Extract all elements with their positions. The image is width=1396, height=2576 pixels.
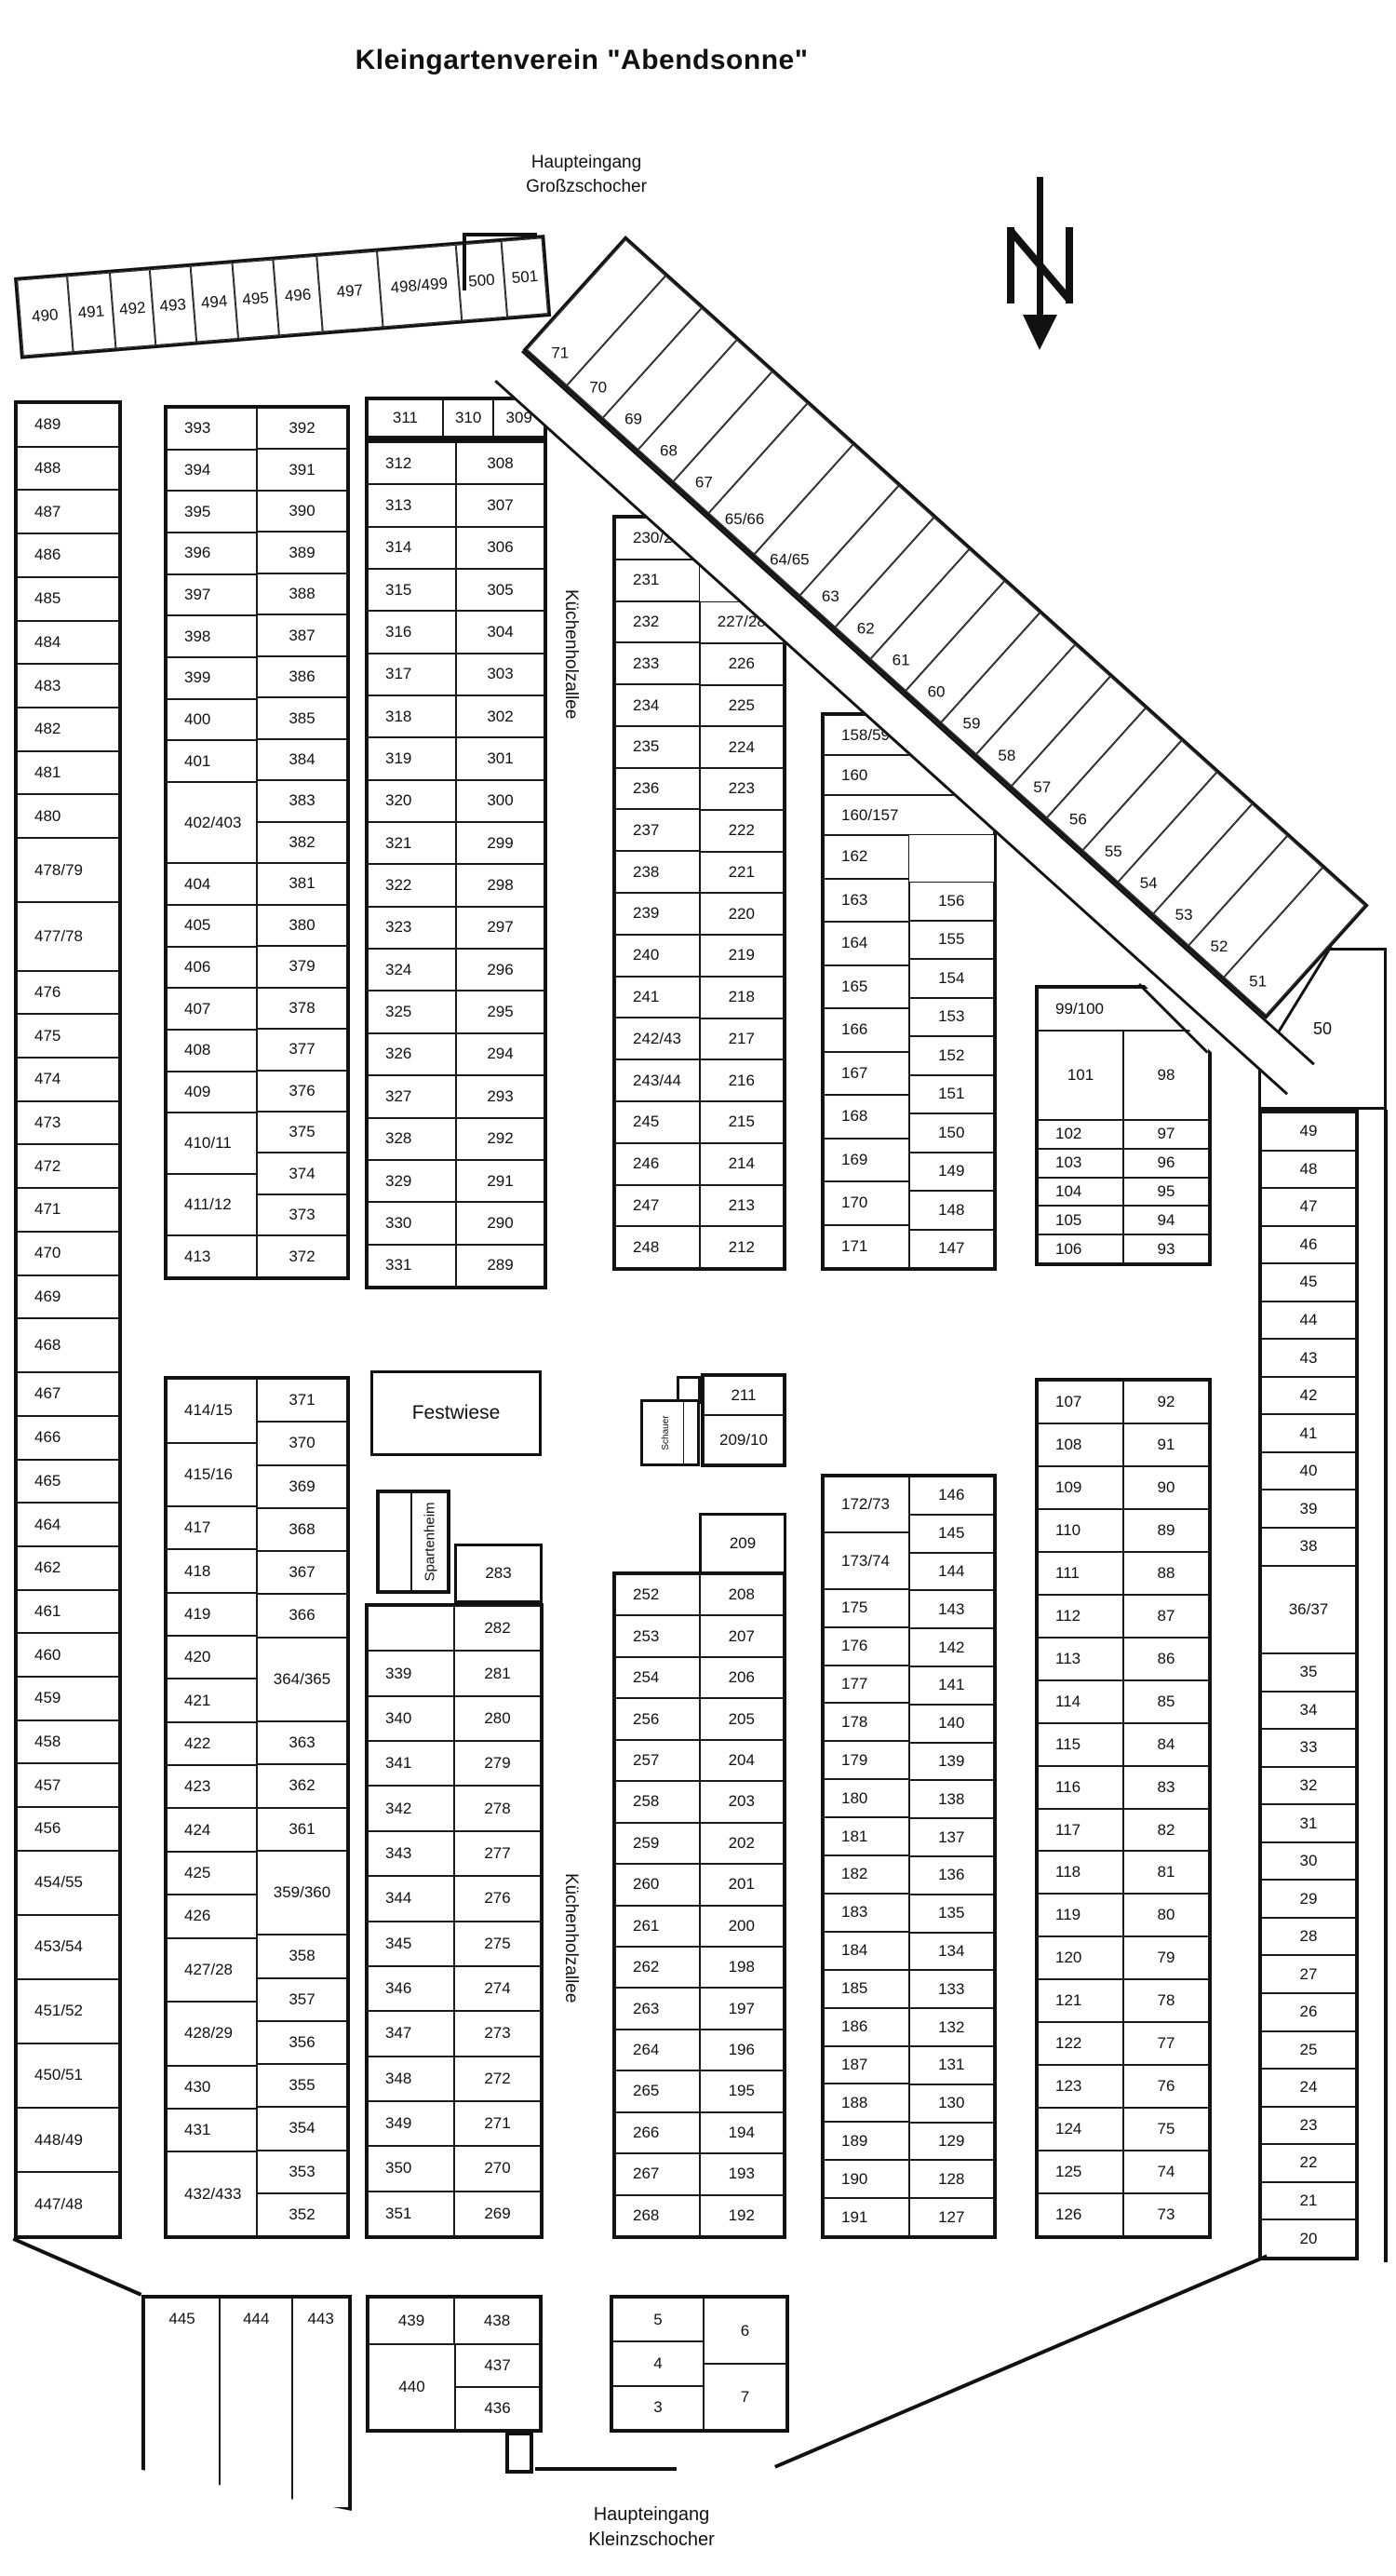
north-wall-stub-h (463, 233, 537, 236)
plot-cell: 221 (700, 852, 785, 894)
plot-cell: 190 (824, 2160, 909, 2198)
plot-cell: 488 (17, 447, 119, 491)
plot-cell: 391 (257, 449, 347, 490)
plot-block: 439438440437436 (366, 2295, 543, 2433)
plot-cell: 216 (700, 1059, 785, 1101)
plot-block: 490491492493494495496497498/499500501 (14, 235, 551, 359)
plot-cell: 497 (317, 251, 383, 332)
plot-cell: 448/49 (17, 2108, 119, 2172)
plot-cell: 340 (368, 1696, 454, 1741)
plot-cell: 173/74 (824, 1532, 909, 1588)
plot-cell: 39 (1261, 1490, 1356, 1528)
plot-cell: 273 (454, 2011, 541, 2056)
plot-cell: 169 (824, 1139, 909, 1182)
plot-cell: 279 (454, 1741, 541, 1786)
plot-cell: 141 (909, 1666, 995, 1705)
schauer-building: Schauer (640, 1399, 700, 1466)
plot-cell: 119 (1038, 1894, 1123, 1936)
plot-cell: 24 (1261, 2069, 1356, 2107)
plot-cell: 490 (17, 276, 73, 356)
plot-cell: 109 (1038, 1466, 1123, 1509)
plot-cell: 373 (257, 1194, 347, 1235)
plot-cell: 369 (257, 1465, 347, 1508)
plot-cell: 469 (17, 1275, 119, 1319)
plot-block: 172/73173/741751761771781791801811821831… (821, 1474, 997, 2239)
plot-cell: 125 (1038, 2151, 1123, 2193)
plot-cell: 351 (368, 2192, 454, 2236)
plot-cell: 498/499 (377, 245, 462, 328)
plot-cell: 298 (456, 864, 544, 906)
plot-cell: 331 (368, 1245, 456, 1287)
plot-cell: 223 (700, 768, 785, 810)
plot-cell: 3 (612, 2386, 704, 2430)
plot-cell: 378 (257, 988, 347, 1029)
plot-cell: 213 (700, 1185, 785, 1227)
plot-cell: 306 (456, 527, 544, 569)
plot-cell: 440 (369, 2344, 455, 2430)
plot-block: 489488487486485484483482481480478/79477/… (14, 400, 122, 2239)
plot-cell: 432/433 (167, 2151, 257, 2236)
plot-cell: 282 (454, 1606, 541, 1651)
plot-cell: 126 (1038, 2193, 1123, 2236)
plot-cell: 482 (17, 708, 119, 751)
plot-cell: 427/28 (167, 1938, 257, 2003)
plot-cell: 489 (17, 403, 119, 447)
spartenheim-label: Spartenheim (422, 1502, 437, 1581)
plot-cell: 292 (456, 1118, 544, 1160)
plot-cell: 495 (233, 260, 279, 339)
plot-cell: 111 (1038, 1552, 1123, 1595)
plot-cell: 377 (257, 1029, 347, 1070)
plot-cell: 94 (1123, 1206, 1209, 1234)
plot-cell: 321 (368, 822, 456, 864)
plot-cell: 96 (1123, 1149, 1209, 1178)
plot-cell: 383 (257, 780, 347, 821)
plot-cell: 80 (1123, 1894, 1209, 1936)
street-kuechenholzallee-upper: Küchenholzallee (560, 589, 581, 719)
plot-cell: 354 (257, 2107, 347, 2150)
plot-cell: 220 (700, 893, 785, 935)
southeast-wall (774, 2254, 1268, 2468)
plot-cell: 256 (615, 1698, 700, 1739)
plot-block: 49484746454443424140393836/3735343332313… (1258, 1110, 1359, 2260)
plot-cell: 445 (144, 2298, 220, 2508)
plot-cell: 428/29 (167, 2002, 257, 2066)
page-title: Kleingartenverein "Abendsonne" (349, 45, 814, 76)
plot-cell: 492 (109, 269, 155, 348)
plot-cell: 407 (167, 988, 257, 1030)
plot-cell: 198 (700, 1947, 785, 1988)
plot-cell: 183 (824, 1894, 909, 1932)
plot-cell: 475 (17, 1014, 119, 1058)
plot-cell: 419 (167, 1593, 257, 1636)
plot-cell: 319 (368, 737, 456, 779)
plot-cell: 392 (257, 408, 347, 449)
plot-cell: 38 (1261, 1528, 1356, 1566)
plot-cell: 485 (17, 577, 119, 621)
plot-cell: 83 (1123, 1766, 1209, 1809)
plot-cell: 342 (368, 1786, 454, 1830)
plot-cell: 134 (909, 1933, 995, 1971)
plot-cell: 438 (454, 2298, 540, 2344)
plot-cell: 474 (17, 1058, 119, 1101)
plot-cell: 356 (257, 2021, 347, 2064)
festwiese-area: Festwiese (370, 1370, 542, 1456)
plot-cell (368, 1606, 454, 1651)
plot-cell: 245 (615, 1101, 700, 1143)
plot-cell: 493 (150, 266, 196, 345)
plot-cell: 114 (1038, 1680, 1123, 1723)
plot-cell: 43 (1261, 1339, 1356, 1377)
plot-cell: 118 (1038, 1851, 1123, 1894)
plot-cell: 368 (257, 1508, 347, 1551)
plot-cell: 233 (615, 642, 700, 684)
plot-cell: 77 (1123, 2022, 1209, 2065)
plot-cell: 239 (615, 893, 700, 935)
plot-cell: 146 (909, 1477, 995, 1515)
plot-cell: 79 (1123, 1936, 1209, 1979)
plot-cell: 236 (615, 768, 700, 810)
plot-cell: 189 (824, 2122, 909, 2160)
plot-cell: 193 (700, 2153, 785, 2194)
plot-cell: 424 (167, 1808, 257, 1851)
plot-cell: 156 (909, 882, 995, 921)
plot-cell: 188 (824, 2084, 909, 2122)
plot-cell: 164 (824, 922, 909, 965)
plot-cell: 263 (615, 1988, 700, 2029)
plot-cell: 380 (257, 905, 347, 946)
plot-cell: 439 (369, 2298, 454, 2344)
plot-cell: 371 (257, 1379, 347, 1422)
plot-cell: 402/403 (167, 782, 257, 863)
plot-cell: 46 (1261, 1226, 1356, 1264)
plot-cell: 232 (615, 601, 700, 643)
plot-cell: 393 (167, 408, 257, 450)
plot-cell: 468 (17, 1318, 119, 1372)
plot-cell: 460 (17, 1633, 119, 1677)
plot-cell: 443 (292, 2298, 349, 2508)
plot-cell: 453/54 (17, 1915, 119, 1979)
plot-cell: 397 (167, 574, 257, 616)
plot-cell: 231 (615, 560, 700, 601)
plot-block: 414/15415/164174184194204214224234244254… (164, 1376, 350, 2239)
plot-cell: 5 (612, 2298, 704, 2341)
plot-cell: 192 (700, 2195, 785, 2236)
plot-cell: 326 (368, 1033, 456, 1075)
plot-cell: 89 (1123, 1509, 1209, 1552)
plot-cell: 339 (368, 1651, 454, 1695)
plot-cell: 150 (909, 1113, 995, 1153)
plot-cell: 272 (454, 2057, 541, 2101)
plot-cell: 409 (167, 1072, 257, 1113)
plot-cell: 457 (17, 1763, 119, 1807)
plot-cell: 138 (909, 1780, 995, 1818)
festwiese-label: Festwiese (412, 1402, 501, 1424)
plot-cell: 34 (1261, 1692, 1356, 1730)
plot-block: 3393403413423433443453463473483493503512… (365, 1603, 544, 2239)
plot-cell: 218 (700, 977, 785, 1018)
plot-cell: 481 (17, 751, 119, 795)
plot-cell: 215 (700, 1101, 785, 1143)
plot-cell: 115 (1038, 1723, 1123, 1766)
plot-cell: 207 (700, 1615, 785, 1656)
plot-cell: 135 (909, 1895, 995, 1933)
plot-cell: 225 (700, 685, 785, 727)
plot-cell: 327 (368, 1075, 456, 1117)
plot-cell: 243/44 (615, 1059, 700, 1101)
plot-cell: 222 (700, 810, 785, 852)
plot-cell: 171 (824, 1225, 909, 1269)
plot-cell: 454/55 (17, 1851, 119, 1915)
plot-cell: 374 (257, 1153, 347, 1194)
north-wall-stub-v (463, 233, 466, 290)
plot-cell: 267 (615, 2153, 700, 2194)
plot-cell: 260 (615, 1864, 700, 1905)
plot-cell: 422 (167, 1722, 257, 1765)
street-kuechenholzallee-lower: Küchenholzallee (560, 1873, 581, 2003)
plot-cell: 191 (824, 2198, 909, 2236)
plot-cell: 418 (167, 1549, 257, 1592)
plot-cell: 110 (1038, 1509, 1123, 1552)
plot-cell: 36/37 (1261, 1566, 1356, 1654)
plot-cell: 252 (615, 1574, 700, 1615)
plot-cell: 105 (1038, 1206, 1123, 1234)
plot-cell: 203 (700, 1781, 785, 1822)
plot-cell: 466 (17, 1416, 119, 1460)
plot-cell: 301 (456, 737, 544, 779)
plot-cell: 147 (909, 1230, 995, 1269)
plot-cell: 307 (456, 484, 544, 526)
plot-cell: 166 (824, 1008, 909, 1052)
plot-cell: 93 (1123, 1234, 1209, 1263)
plot-cell: 20 (1261, 2219, 1356, 2258)
plot-cell: 381 (257, 863, 347, 904)
plot-cell: 40 (1261, 1452, 1356, 1490)
plot-cell: 345 (368, 1922, 454, 1966)
plot-cell: 496 (273, 256, 323, 336)
plot-cell: 6 (704, 2298, 786, 2364)
plot-cell: 238 (615, 851, 700, 893)
plot-cell: 102 (1038, 1120, 1123, 1149)
plot-cell: 467 (17, 1372, 119, 1416)
plot-cell: 295 (456, 991, 544, 1032)
plot-cell: 172/73 (824, 1477, 909, 1532)
plot-cell: 473 (17, 1101, 119, 1145)
plot-cell: 154 (909, 959, 995, 998)
plot-cell: 132 (909, 2008, 995, 2046)
plot-cell: 200 (700, 1906, 785, 1947)
plot-cell: 494 (190, 263, 238, 342)
plot-cell: 180 (824, 1779, 909, 1817)
plot-cell: 431 (167, 2109, 257, 2151)
plot-cell: 328 (368, 1118, 456, 1160)
plot-cell: 22 (1261, 2144, 1356, 2182)
plot-cell: 106 (1038, 1234, 1123, 1263)
plot-block: 445444443 (141, 2295, 352, 2511)
plot-cell: 78 (1123, 1979, 1209, 2022)
plot-cell: 436 (455, 2387, 540, 2430)
plot-cell: 88 (1123, 1552, 1209, 1595)
plot-cell: 168 (824, 1095, 909, 1139)
plot-cell: 224 (700, 726, 785, 768)
plot-cell: 28 (1261, 1918, 1356, 1956)
plot-cell: 388 (257, 573, 347, 614)
plot-cell: 31 (1261, 1804, 1356, 1842)
plot-block: 1071081091101111121131141151161171181191… (1035, 1378, 1212, 2239)
plot-cell: 425 (167, 1852, 257, 1895)
plot-cell: 108 (1038, 1423, 1123, 1466)
plot-cell: 277 (454, 1831, 541, 1876)
plot-cell: 257 (615, 1740, 700, 1781)
plot-cell: 450/51 (17, 2043, 119, 2108)
plot-cell: 128 (909, 2160, 995, 2198)
plot-cell: 314 (368, 527, 456, 569)
plot-cell: 477/78 (17, 902, 119, 971)
plot-cell: 113 (1038, 1638, 1123, 1680)
plot-cell: 101 (1038, 1031, 1123, 1120)
plot-block: 3123133143153163173183193203213223233243… (365, 439, 547, 1289)
plot-cell: 25 (1261, 2031, 1356, 2070)
plot-cell: 182 (824, 1855, 909, 1894)
plot-cell: 302 (456, 695, 544, 737)
plot-cell: 271 (454, 2101, 541, 2146)
plot-cell: 122 (1038, 2022, 1123, 2065)
plot-cell: 359/360 (257, 1851, 347, 1935)
plot-cell: 370 (257, 1422, 347, 1464)
plot-cell: 325 (368, 991, 456, 1032)
plot-cell: 104 (1038, 1178, 1123, 1207)
plot-cell: 420 (167, 1636, 257, 1679)
plot-cell: 347 (368, 2011, 454, 2056)
plot-cell: 85 (1123, 1680, 1209, 1723)
plot-cell: 123 (1038, 2065, 1123, 2108)
plot-cell: 162 (824, 835, 909, 879)
plot-cell: 476 (17, 971, 119, 1015)
plot-cell: 137 (909, 1818, 995, 1856)
plot-cell: 379 (257, 946, 347, 987)
plot-cell: 76 (1123, 2065, 1209, 2108)
plot-cell: 241 (615, 977, 700, 1018)
plot-cell: 235 (615, 726, 700, 768)
plot-cell: 318 (368, 695, 456, 737)
plot-cell: 470 (17, 1232, 119, 1275)
plot-cell: 42 (1261, 1377, 1356, 1415)
plot-cell: 320 (368, 780, 456, 822)
plot-cell: 258 (615, 1781, 700, 1822)
plot-cell: 73 (1123, 2193, 1209, 2236)
plot-cell: 437 (455, 2344, 540, 2387)
plot-cell: 451/52 (17, 1979, 119, 2043)
plot-cell: 308 (456, 442, 544, 484)
plot-cell: 21 (1261, 2182, 1356, 2220)
plot-cell: 324 (368, 949, 456, 991)
plot-cell: 95 (1123, 1178, 1209, 1207)
plot-cell: 187 (824, 2046, 909, 2084)
plot-cell: 259 (615, 1823, 700, 1864)
plot-cell: 311 (368, 399, 443, 437)
plot-cell: 217 (700, 1018, 785, 1060)
plot-cell: 361 (257, 1808, 347, 1851)
plot-cell: 296 (456, 949, 544, 991)
plot-cell: 316 (368, 611, 456, 653)
plot-cell: 405 (167, 905, 257, 947)
plot-cell: 480 (17, 794, 119, 838)
plot-cell: 291 (456, 1160, 544, 1202)
plot-cell: 32 (1261, 1767, 1356, 1805)
plot-cell: 278 (454, 1786, 541, 1830)
plot-cell: 353 (257, 2151, 347, 2193)
plot-cell: 204 (700, 1740, 785, 1781)
plot-cell: 167 (824, 1052, 909, 1096)
plot-cell: 152 (909, 1036, 995, 1075)
plot-cell: 401 (167, 740, 257, 782)
plot-cell: 265 (615, 2070, 700, 2111)
plot-cell: 261 (615, 1906, 700, 1947)
plot-cell: 121 (1038, 1979, 1123, 2022)
plot-cell: 212 (700, 1226, 785, 1268)
plot-cell: 195 (700, 2070, 785, 2111)
plot-cell: 237 (615, 809, 700, 851)
plot-cell: 417 (167, 1506, 257, 1549)
plot-cell: 305 (456, 569, 544, 611)
plot-cell: 404 (167, 863, 257, 905)
plot-cell: 358 (257, 1935, 347, 1977)
plot-block: 211209/10 (701, 1373, 786, 1467)
main-entrance-south-label: Haupteingang Kleinzschocher (540, 2502, 763, 2553)
plot-block: 99/100101981021031041051069796959493 (1035, 985, 1212, 1266)
plot-cell: 395 (167, 491, 257, 533)
plot-cell: 382 (257, 822, 347, 863)
plot-cell: 276 (454, 1876, 541, 1921)
north-arrow-icon (998, 173, 1083, 352)
plot-cell: 461 (17, 1590, 119, 1634)
plot-cell: 142 (909, 1628, 995, 1666)
plot-cell: 202 (700, 1823, 785, 1864)
plot-cell: 366 (257, 1594, 347, 1637)
plot-cell: 91 (1123, 1423, 1209, 1466)
plot-cell: 211 (704, 1376, 784, 1415)
plot-cell: 349 (368, 2101, 454, 2146)
plot-cell: 4 (612, 2341, 704, 2385)
plot-cell: 330 (368, 1202, 456, 1244)
plot-block: 393394395396397398399400401402/403404405… (164, 405, 350, 1280)
plot-cell: 185 (824, 1970, 909, 2008)
plot-block: 2522532542562572582592602612622632642652… (612, 1571, 786, 2239)
plot-cell: 423 (167, 1765, 257, 1808)
plot-cell: 487 (17, 490, 119, 533)
plot-cell: 400 (167, 699, 257, 741)
plot-cell: 303 (456, 654, 544, 695)
plot-cell: 181 (824, 1817, 909, 1855)
plot-cell: 219 (700, 935, 785, 977)
plot-cell: 206 (700, 1657, 785, 1698)
plot-cell: 312 (368, 442, 456, 484)
plot-block: 283 (454, 1544, 543, 1603)
plot-cell: 262 (615, 1947, 700, 1988)
plot-cell: 472 (17, 1144, 119, 1188)
plot-cell: 175 (824, 1589, 909, 1627)
plot-cell: 97 (1123, 1120, 1209, 1149)
plot-cell: 247 (615, 1185, 700, 1227)
plot-cell: 155 (909, 921, 995, 960)
plot-cell: 81 (1123, 1851, 1209, 1894)
plot-cell: 47 (1261, 1188, 1356, 1226)
plot-cell: 148 (909, 1191, 995, 1230)
plot-cell: 491 (67, 273, 115, 352)
plot-cell: 116 (1038, 1766, 1123, 1809)
plot-cell: 86 (1123, 1638, 1209, 1680)
plot-cell: 274 (454, 1966, 541, 2011)
